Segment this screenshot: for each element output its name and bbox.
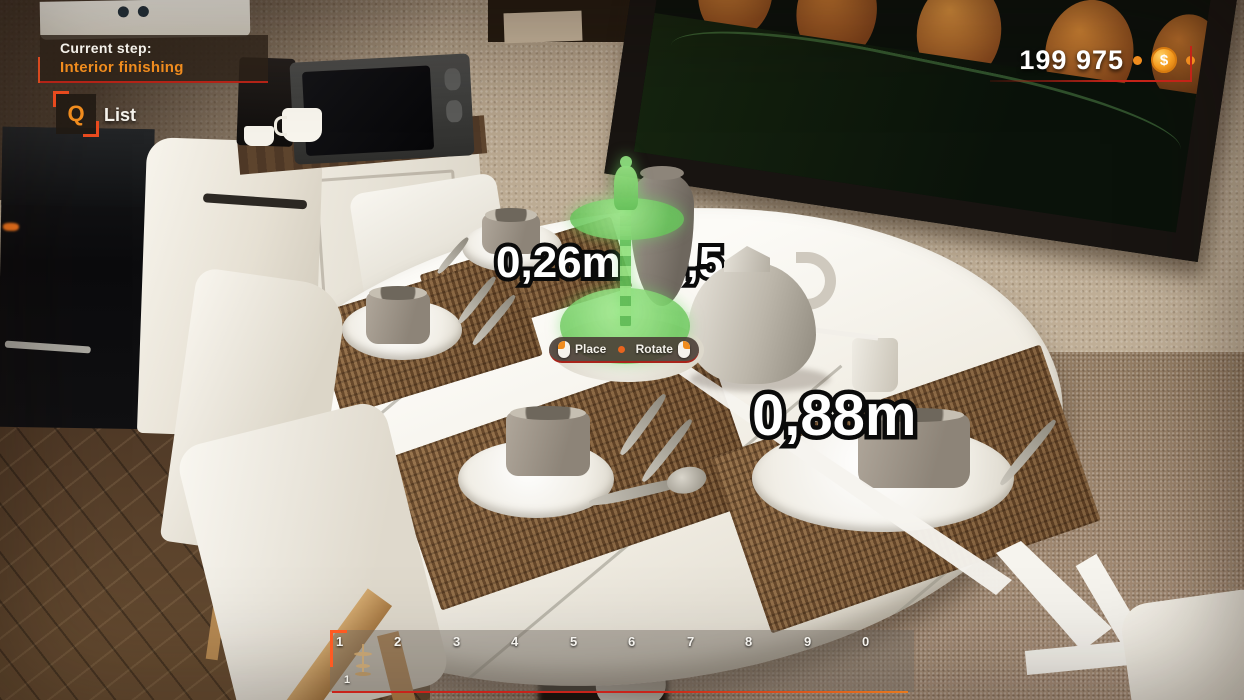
hotbar-slot-number: 5 <box>570 634 577 649</box>
money-amount: 199 975 <box>1019 45 1124 76</box>
hotbar-slot-number: 4 <box>511 634 518 649</box>
money-underline <box>990 80 1192 82</box>
hotbar-slot-3[interactable]: 3 <box>447 630 505 692</box>
hotbar-slot-number: 1 <box>336 634 343 649</box>
hotbar-slot-6[interactable]: 6 <box>622 630 680 692</box>
game-screen: 0,5 0,26m 0,88m Current step: Interior f… <box>0 0 1244 700</box>
dollar-coin-icon: $ <box>1151 47 1177 73</box>
hotbar-slot-9[interactable]: 9 <box>798 630 856 692</box>
hotbar-slot-number: 8 <box>745 634 752 649</box>
hotbar: 1 1 2 3 4 5 6 7 8 9 0 <box>330 630 914 692</box>
hotbar-slot-number: 3 <box>453 634 460 649</box>
hotbar-slot-number: 0 <box>862 634 869 649</box>
measurement-label-left: 0,26m <box>496 238 621 288</box>
money-counter: 199 975 $ <box>985 42 1195 78</box>
current-step-panel: Current step: Interior finishing <box>40 35 268 83</box>
hotbar-underline <box>332 691 908 693</box>
dot-icon <box>618 346 625 353</box>
place-action-label: Place <box>575 342 606 356</box>
hotbar-slot-number: 2 <box>394 634 401 649</box>
hotbar-slot-1[interactable]: 1 1 <box>330 630 388 692</box>
hotbar-slot-4[interactable]: 4 <box>505 630 563 692</box>
current-step-value: Interior finishing <box>60 59 184 76</box>
list-shortcut-label: List <box>104 105 136 126</box>
current-step-label: Current step: <box>60 40 152 56</box>
hotbar-slot-5[interactable]: 5 <box>564 630 622 692</box>
measurement-label-right: 0,88m <box>752 382 916 449</box>
q-key-icon: Q <box>67 101 84 127</box>
hotbar-slot-2[interactable]: 2 <box>388 630 446 692</box>
hotbar-slot-number: 7 <box>687 634 694 649</box>
rotate-action-label: Rotate <box>636 342 673 356</box>
place-rotate-tooltip: Place Rotate <box>549 337 699 363</box>
placement-preview-cake-stand[interactable] <box>614 166 638 210</box>
cake-stand-item-icon <box>352 642 374 678</box>
dot-icon <box>1133 56 1142 65</box>
mouse-right-click-icon <box>678 341 690 358</box>
hotbar-slot-7[interactable]: 7 <box>681 630 739 692</box>
hotbar-slot-number: 6 <box>628 634 635 649</box>
mouse-left-click-icon <box>558 341 570 358</box>
hotbar-slot-8[interactable]: 8 <box>739 630 797 692</box>
hotbar-item-count: 1 <box>344 674 350 686</box>
hotbar-slot-number: 9 <box>804 634 811 649</box>
list-shortcut-key[interactable]: Q <box>56 94 96 134</box>
hotbar-slot-0[interactable]: 0 <box>856 630 914 692</box>
